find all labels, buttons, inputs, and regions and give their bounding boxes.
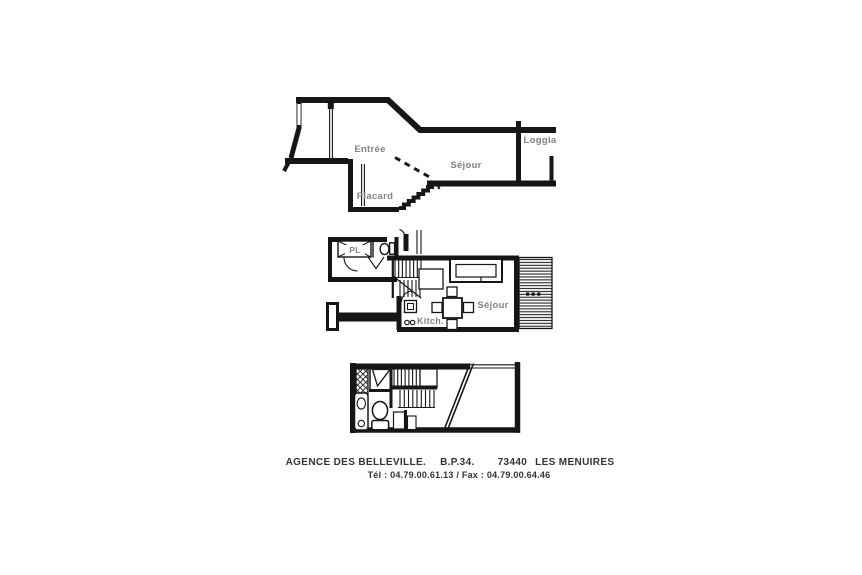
agency-address-line: AGENCE DES BELLEVILLE. B.P.34. 73440 LES… — [286, 457, 615, 468]
bidet-icon — [355, 393, 369, 430]
section-partition-cap — [328, 103, 334, 109]
stair-upper-treads — [395, 259, 421, 278]
lower-door-leaf — [394, 412, 405, 429]
label-entree: Entrée — [354, 144, 385, 155]
stove-burner-icon — [410, 320, 414, 324]
floor-plan-drawing: Entrée Séjour Loggia Placard — [0, 0, 862, 575]
label-sejour-main: Séjour — [477, 300, 508, 311]
sloped-ceiling-line — [444, 364, 474, 431]
section-stairs-dashed — [395, 158, 433, 180]
section-stairs-steps — [399, 187, 434, 208]
agency-postal-code: 73440 — [498, 457, 528, 468]
staircase — [393, 258, 444, 298]
sofa-icon — [450, 259, 502, 283]
lower-stair-landing — [420, 369, 437, 388]
wc-door-leaf — [368, 257, 384, 269]
entry-thin-walls — [417, 230, 421, 254]
lower-staircase — [391, 368, 437, 408]
label-kitchen: Kitch. — [417, 316, 444, 326]
stair-landing — [419, 269, 443, 289]
upper-section-plan: Entrée Séjour Loggia Placard — [284, 97, 557, 210]
label-placard: Placard — [357, 191, 393, 202]
floor-plan-sheet: Entrée Séjour Loggia Placard — [0, 0, 862, 575]
lower-stair-upper-treads — [394, 368, 420, 386]
toilet-bowl-icon — [372, 402, 389, 430]
agency-phone-fax-line: Tél : 04.79.00.61.13 / Fax : 04.79.00.64… — [368, 470, 551, 480]
section-thin-partition — [330, 104, 333, 158]
stove-burner-icon — [405, 320, 409, 324]
lower-top-thin-wall — [468, 365, 517, 368]
lower-stair-lower-treads — [400, 390, 434, 407]
kitchen-sink-icon — [405, 301, 417, 313]
agency-name: AGENCE DES BELLEVILLE. — [286, 457, 427, 468]
balcony-deck — [519, 258, 552, 329]
toilet-tank-icon — [390, 243, 395, 254]
main-floor-plan: PL Séjour Kitch. — [328, 230, 553, 333]
entry-passage-post — [328, 304, 338, 330]
lower-door-leaf-2 — [408, 416, 417, 430]
bathroom-door-arc — [344, 258, 358, 272]
shower-hatch-strip — [356, 368, 368, 395]
agency-po-box: B.P.34. — [440, 457, 475, 468]
entry-passage-bar — [338, 313, 398, 322]
section-left-window — [297, 104, 300, 125]
washbasin-icon — [373, 370, 391, 387]
lower-floor-plan — [350, 362, 520, 433]
toilet-icon — [380, 243, 389, 254]
stair-direction-line — [393, 276, 421, 298]
label-sejour-upper: Séjour — [450, 160, 481, 171]
balcony-marks — [526, 293, 540, 296]
agency-city: LES MENUIRES — [535, 457, 614, 468]
label-loggia: Loggia — [524, 135, 557, 146]
label-closet: PL — [349, 245, 360, 255]
